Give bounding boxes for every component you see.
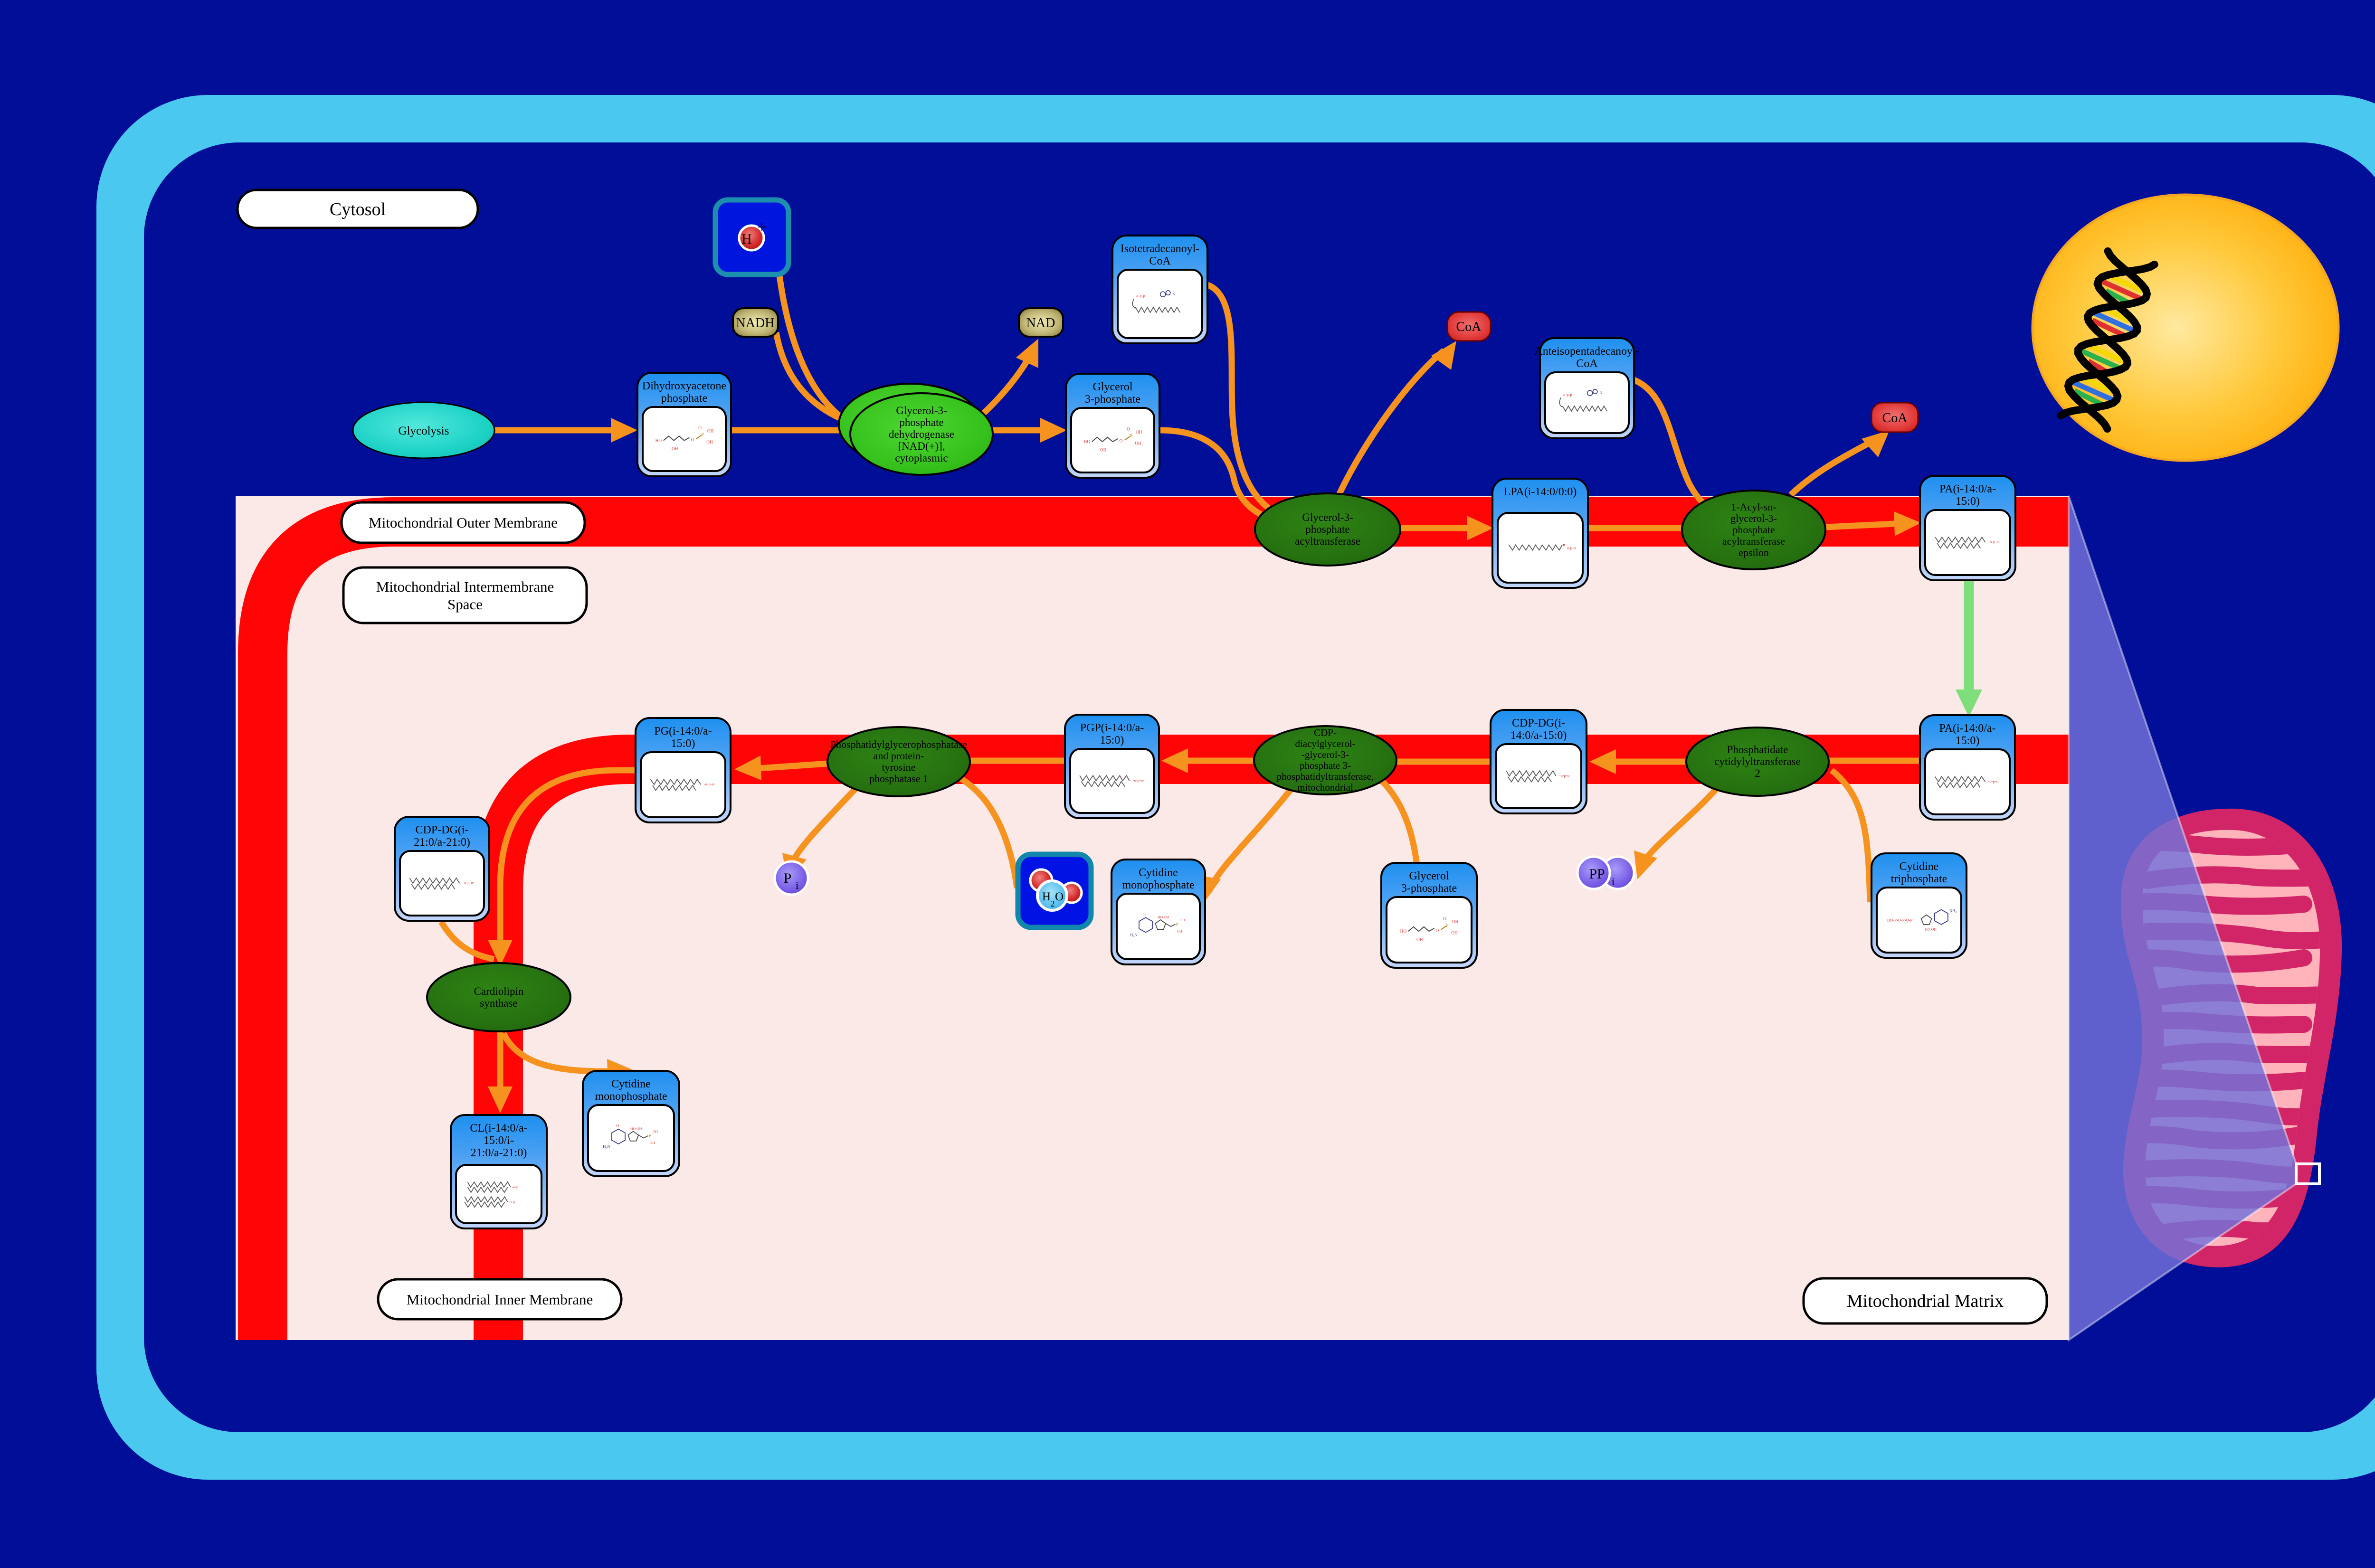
svg-text:CoA: CoA	[1882, 411, 1908, 425]
svg-text:P: P	[1130, 434, 1132, 439]
svg-text:O: O	[698, 426, 702, 431]
svg-text:P: P	[1176, 922, 1178, 926]
svg-text:-o-p-o·: -o-p-o·	[1133, 778, 1144, 783]
svg-text:HO OH: HO OH	[1158, 915, 1169, 919]
svg-text:i: i	[1612, 876, 1615, 888]
svg-text:i: i	[796, 879, 798, 891]
svg-text:HO: HO	[655, 439, 662, 444]
svg-text:NAD: NAD	[1026, 316, 1055, 331]
svg-text:Glycerol3-phosphate: Glycerol3-phosphate	[1085, 381, 1140, 406]
svg-text:OH: OH	[1416, 937, 1423, 942]
svg-text:O: O	[1127, 427, 1130, 432]
svg-text:OH: OH	[1451, 931, 1458, 935]
svg-text:Mitochondrial Matrix: Mitochondrial Matrix	[1847, 1291, 2004, 1311]
svg-text:O: O	[1436, 929, 1439, 934]
svg-text:P: P	[701, 433, 703, 437]
svg-text:o-p-o: o-p-o	[1567, 546, 1576, 550]
svg-text:N: N	[1600, 390, 1603, 395]
svg-text:+: +	[757, 217, 767, 236]
svg-text:Cytosol: Cytosol	[330, 199, 386, 219]
svg-text:P: P	[649, 1133, 651, 1138]
svg-text:CoA: CoA	[1456, 320, 1482, 334]
svg-text:OH: OH	[1135, 441, 1141, 446]
svg-text:Glycerol-3-phosphatedehydrogen: Glycerol-3-phosphatedehydrogenase[NAD(+)…	[889, 405, 954, 464]
svg-text:OH: OH	[1452, 920, 1459, 925]
svg-text:-o-p-o·: -o-p-o·	[1988, 539, 2000, 544]
svg-text:O: O	[1443, 917, 1446, 922]
svg-text:2: 2	[1051, 899, 1055, 908]
svg-text:HO OH: HO OH	[1925, 927, 1937, 931]
svg-text:OH: OH	[707, 429, 714, 434]
svg-text:P: P	[1446, 924, 1448, 928]
svg-text:LPA(i-14:0/0:0): LPA(i-14:0/0:0)	[1504, 486, 1577, 498]
svg-text:HO‑P‑O‑P‑O‑P: HO‑P‑O‑P‑O‑P	[1887, 918, 1913, 923]
svg-text:-o-p: -o-p	[512, 1185, 518, 1189]
svg-text:NADH: NADH	[736, 316, 775, 331]
svg-text:-o-p-o·: -o-p-o·	[1559, 773, 1571, 778]
svg-text:P: P	[784, 870, 792, 886]
svg-text:OH: OH	[653, 1130, 658, 1134]
svg-text:OH: OH	[1180, 918, 1186, 922]
svg-text:Mitochondrial Outer Membrane: Mitochondrial Outer Membrane	[369, 514, 558, 531]
svg-text:OH: OH	[706, 440, 713, 445]
svg-text:HO OH: HO OH	[630, 1126, 642, 1131]
svg-text:o‑p‑p: o‑p‑p	[1136, 293, 1145, 298]
svg-text:-o-p-o·: -o-p-o·	[1988, 779, 2000, 784]
svg-text:O: O	[1143, 912, 1146, 916]
svg-text:PP: PP	[1589, 866, 1605, 882]
svg-text:H₂N: H₂N	[1130, 932, 1137, 937]
svg-text:H₂N: H₂N	[603, 1144, 610, 1149]
svg-text:O: O	[691, 438, 694, 443]
svg-text:HO: HO	[1084, 440, 1091, 444]
svg-text:H: H	[741, 231, 752, 247]
svg-text:Glycerol3-phosphate: Glycerol3-phosphate	[1401, 870, 1457, 895]
svg-text:OH: OH	[1136, 430, 1142, 435]
svg-text:O: O	[616, 1123, 619, 1128]
svg-text:Mitochondrial Inner Membrane: Mitochondrial Inner Membrane	[407, 1291, 593, 1308]
svg-text:Glycolysis: Glycolysis	[399, 425, 449, 437]
svg-text:-o-p: -o-p	[509, 1200, 515, 1204]
svg-text:o‑p‑p: o‑p‑p	[1563, 392, 1572, 397]
svg-text:CDP-DG(i-21:0/a-21:0): CDP-DG(i-21:0/a-21:0)	[414, 824, 470, 849]
svg-text:CDP-DG(i-14:0/a-15:0): CDP-DG(i-14:0/a-15:0)	[1510, 717, 1567, 742]
svg-text:OH: OH	[1177, 929, 1183, 933]
svg-text:OH: OH	[672, 447, 678, 452]
svg-text:N: N	[1173, 292, 1176, 296]
svg-text:OH: OH	[650, 1141, 655, 1145]
svg-text:HO: HO	[1400, 929, 1407, 934]
svg-text:H: H	[1042, 890, 1051, 903]
svg-text:O: O	[1120, 439, 1123, 444]
svg-text:OH: OH	[1100, 448, 1107, 453]
svg-text:NH₂: NH₂	[1949, 908, 1957, 913]
svg-text:-o-p-o·: -o-p-o·	[463, 880, 474, 885]
svg-text:Cardiolipinsynthase: Cardiolipinsynthase	[474, 985, 524, 1009]
svg-text:O: O	[1055, 890, 1064, 903]
svg-text:-o-p-o·: -o-p-o·	[704, 782, 715, 786]
